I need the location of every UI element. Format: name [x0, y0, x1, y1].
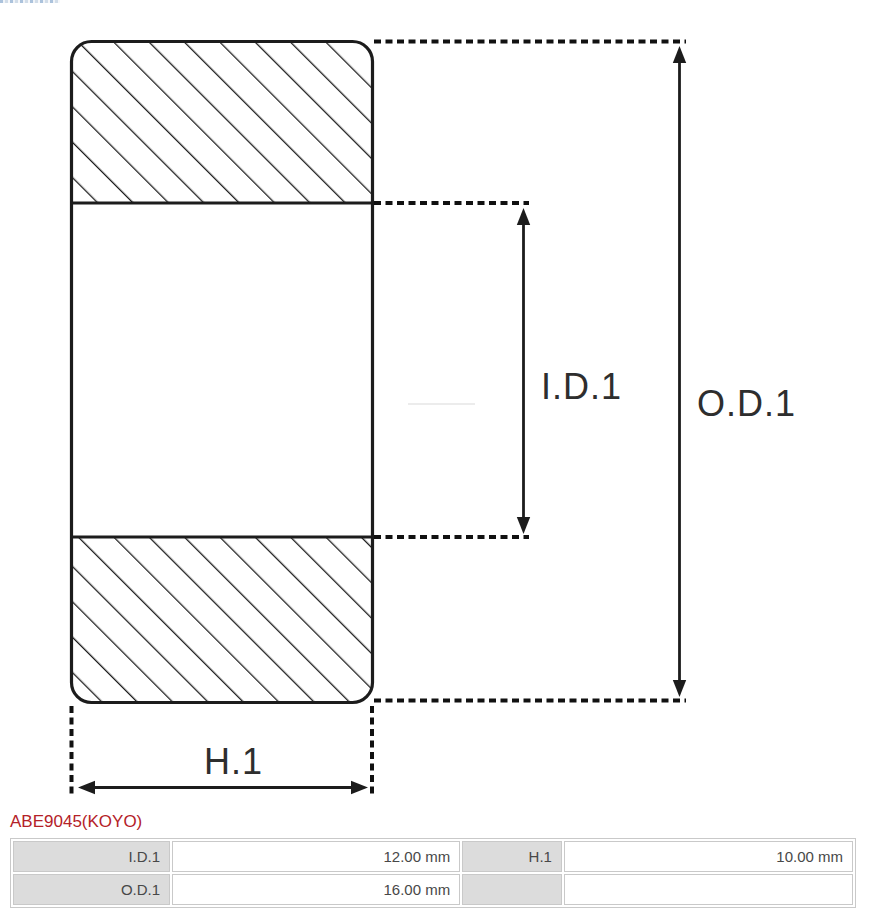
- spec-value-h: 10.00 mm: [564, 841, 853, 872]
- table-row: O.D.1 16.00 mm: [13, 874, 853, 905]
- page: I.D.1 O.D.1 H.1 ABE9045(KOYO) I.D.1 12.0…: [0, 0, 871, 913]
- spec-label-od: O.D.1: [13, 874, 170, 905]
- id-dimension-arrow: [517, 208, 530, 534]
- part-number-title: ABE9045(KOYO): [10, 811, 142, 833]
- od-dimension-label: O.D.1: [697, 383, 796, 424]
- spec-label-empty: [462, 874, 562, 905]
- od-dimension-arrow: [673, 46, 686, 697]
- spec-value-od: 16.00 mm: [172, 874, 460, 905]
- spec-label-id: I.D.1: [13, 841, 170, 872]
- bearing-diagram: I.D.1 O.D.1 H.1: [0, 0, 871, 806]
- bearing-section-hatching: [72, 42, 373, 703]
- id-dimension-label: I.D.1: [541, 366, 622, 407]
- h-dimension-arrow: [78, 781, 368, 794]
- spec-value-empty: [564, 874, 853, 905]
- spec-value-id: 12.00 mm: [172, 841, 460, 872]
- h-dimension-label: H.1: [204, 741, 263, 782]
- spec-label-h: H.1: [462, 841, 562, 872]
- table-row: I.D.1 12.00 mm H.1 10.00 mm: [13, 841, 853, 872]
- spec-table: I.D.1 12.00 mm H.1 10.00 mm O.D.1 16.00 …: [10, 838, 856, 908]
